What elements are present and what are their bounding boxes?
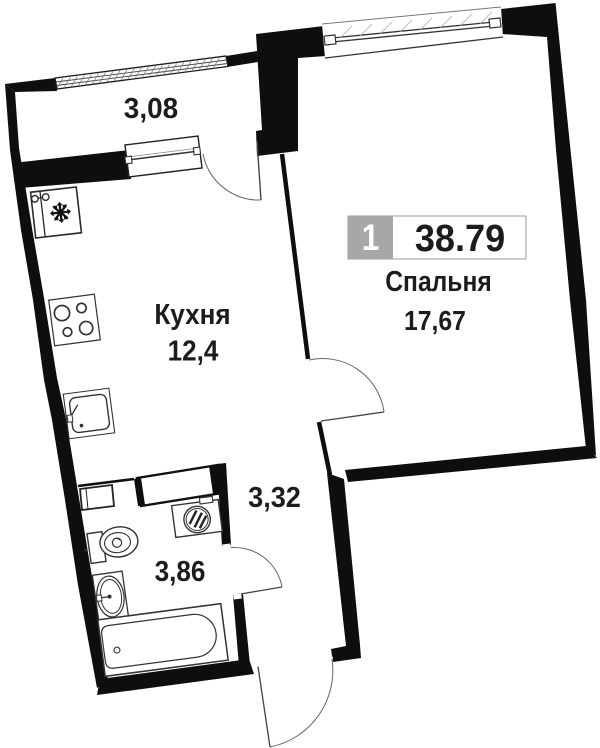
svg-text:17,67: 17,67 [404,305,466,337]
svg-text:38.79: 38.79 [415,216,505,259]
svg-text:3,86: 3,86 [155,555,206,588]
svg-text:3,08: 3,08 [124,92,178,124]
svg-text:Спальня: Спальня [385,265,491,297]
svg-text:3,32: 3,32 [248,481,301,513]
svg-text:1: 1 [362,218,379,259]
svg-text:Кухня: Кухня [154,298,230,331]
svg-text:12,4: 12,4 [168,334,219,367]
